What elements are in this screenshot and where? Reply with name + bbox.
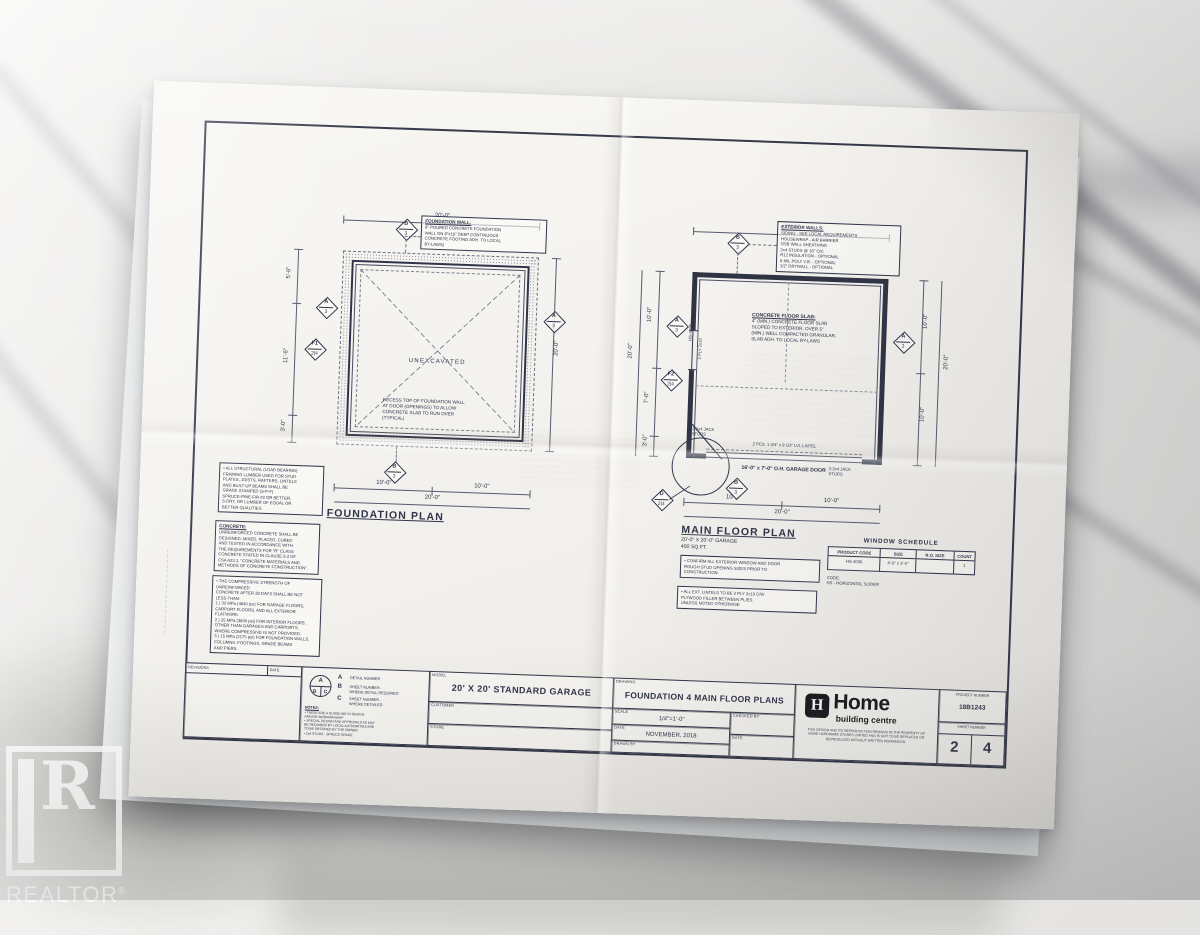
drawing-label: DRAWING <box>616 680 636 685</box>
cell-product-code: HS-4036 <box>828 556 880 571</box>
detail-callout: F2 2|4 <box>660 369 681 390</box>
legend-b-letter: B <box>337 684 342 690</box>
legend-notes-body: • THESE ARE A GUIDELINE IN DESIGN AND/OR… <box>304 710 427 739</box>
jack-studs-label-left: 2-2x4 JACK STUDS <box>692 426 726 438</box>
slab-note-body: 4" (MIN.) CONCRETE FLOOR SLAB SLOPED TO … <box>751 318 878 346</box>
detail-callout: A 3 <box>893 331 914 352</box>
date2-cell: DATE <box>728 734 795 759</box>
recess-note: RECESS TOP OF FOUNDATION WALL AT DOOR (O… <box>382 397 507 425</box>
registered-mark: ® <box>118 886 126 896</box>
col-header: R.O. SIZE <box>915 550 953 559</box>
home-hardware-logo-icon: H <box>805 693 830 718</box>
checked-by-label: CHECKED BY <box>733 714 760 719</box>
sheet-total: 4 <box>970 739 1004 757</box>
col-header: COUNT <box>953 552 974 561</box>
print-bleed <box>520 424 642 488</box>
exterior-walls-note: EXTERIOR WALLS:SIDING - SEE LOCAL REQUIR… <box>776 221 902 276</box>
logo-disclaimer: THIS DESIGN AND ITS REPRODUCTION REMAINS… <box>798 727 934 745</box>
callout-legend-icon: A B C <box>309 675 332 698</box>
legend-cell: A B C A DETAIL NUMBER B SHEET NUMBER - W… <box>299 666 432 746</box>
legend-a-desc: DETAIL NUMBER <box>350 676 381 682</box>
project-number-cell: PROJECT NUMBER 18B1243 <box>938 689 1007 725</box>
cell-count: 1 <box>953 561 974 575</box>
logo-wordmark: Home <box>833 690 890 716</box>
sheet-number-label: SHEET NUMBER <box>938 724 1004 730</box>
date2-label: DATE <box>732 736 743 740</box>
logo-subtext: building centre <box>836 713 897 725</box>
drawing-value: FOUNDATION 4 MAIN FLOOR PLANS <box>613 689 795 706</box>
cell-ro-size <box>915 559 954 573</box>
revisions-header-row: REVISIONS DATE <box>186 663 302 677</box>
model-label: MODEL <box>432 673 447 678</box>
revisions-cell: REVISIONS DATE <box>183 662 304 741</box>
model-value: 20' X 20' STANDARD GARAGE <box>429 682 613 699</box>
detail-callout: A 3 <box>316 297 337 318</box>
concrete-note: CONCRETE:UNREINFORCED CONCRETE SHALL BE … <box>214 520 321 575</box>
scale-label: SCALE <box>615 710 629 714</box>
detail-callout: A 3 <box>543 311 564 332</box>
detail-callout: B 3 <box>384 461 405 482</box>
col-header: SIZE <box>880 549 916 558</box>
jack-studs-label-right: 2-2x4 JACK STUDS <box>828 466 862 478</box>
logo-cell: H Home building centre THIS DESIGN AND I… <box>792 684 941 764</box>
realtor-logo-icon: R <box>6 746 122 876</box>
project-number-value: 18B1243 <box>939 703 1005 712</box>
legend-b-desc: SHEET NUMBER - WHERE DETAIL REQUIRED <box>349 685 398 696</box>
blueprint-sheet: UNEXCAVATED 20'-0" 5'-6" 11'-6" 3'-0" 20… <box>128 81 1079 830</box>
legend-circle-vline <box>320 686 321 696</box>
realtor-watermark: R REALTOR® <box>6 746 127 908</box>
revisions-divider <box>267 666 268 675</box>
drawn-by-label: DRAWN BY <box>614 742 636 747</box>
realtor-logo-r: R <box>40 756 95 863</box>
revisions-date-label: DATE <box>270 668 280 672</box>
sheet-current: 2 <box>937 738 971 756</box>
concrete-strength-note: • THE COMPRESSIVE STRENGTH OF UNREINFORC… <box>210 575 323 657</box>
legend-a-letter: A <box>338 675 343 681</box>
slab-note: CONCRETE FLOOR SLAB: 4" (MIN.) CONCRETE … <box>751 312 878 346</box>
detail-leader <box>661 483 692 506</box>
date-label: DATE <box>614 726 625 730</box>
marble-shadow-patch <box>280 845 1000 935</box>
detail-callout: A 3 <box>666 315 687 336</box>
sheet-number-cell: SHEET NUMBER 2 4 <box>936 721 1005 766</box>
detail-callout: B 3 <box>727 232 748 253</box>
photo-of-blueprint: { "photo": { "watermark_name": "REALTOR"… <box>0 0 1200 900</box>
project-number-label: PROJECT NUMBER <box>940 692 1006 698</box>
detail-callout: F1 2|4 <box>304 338 325 359</box>
margin-stamp <box>164 549 168 633</box>
customer-label: CUSTOMER <box>431 703 454 708</box>
legend-c-letter: C <box>337 696 342 702</box>
detail-callout: B 3 <box>726 477 747 498</box>
marble-vein <box>1085 155 1200 210</box>
legend-notes-title: NOTES: <box>305 705 319 710</box>
realtor-logo-bar <box>18 759 34 863</box>
framing-note: • ALL STRUCTURAL (LOAD BEARING) FRAMING … <box>218 462 325 516</box>
marble-vein <box>0 61 152 254</box>
store-label: STORE <box>430 725 444 729</box>
revisions-label: REVISIONS <box>188 665 209 670</box>
cell-size: 4'-0" x 3'-0" <box>880 558 916 572</box>
legend-c-desc: SHEET NUMBER - WHERE DETAILED <box>349 697 383 708</box>
realtor-watermark-text: REALTOR® <box>6 882 127 908</box>
foundation-wall-note: FOUNDATION WALL:8" POURED CONCRETE FOUND… <box>420 215 547 254</box>
